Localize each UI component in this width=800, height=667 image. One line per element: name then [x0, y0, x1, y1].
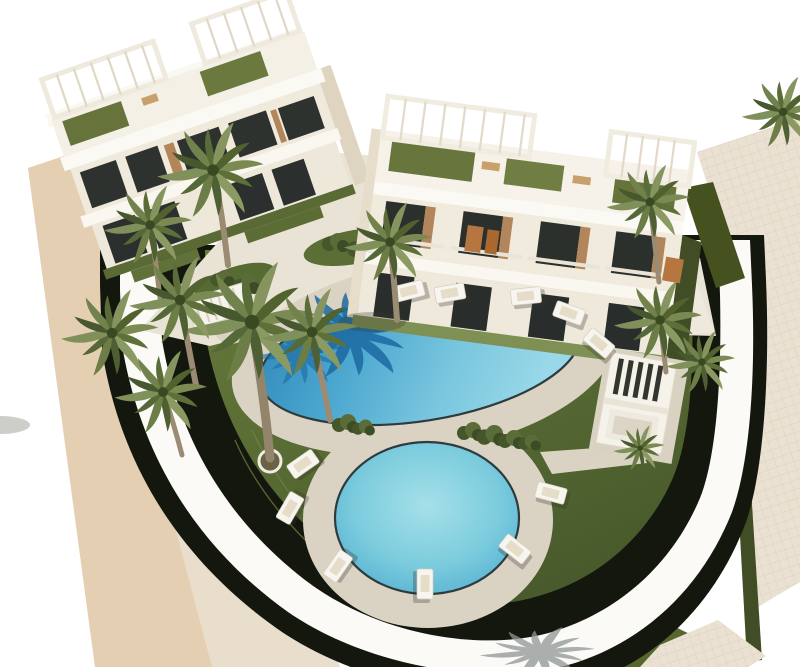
render-canvas [0, 0, 800, 667]
resort-render [0, 0, 800, 667]
